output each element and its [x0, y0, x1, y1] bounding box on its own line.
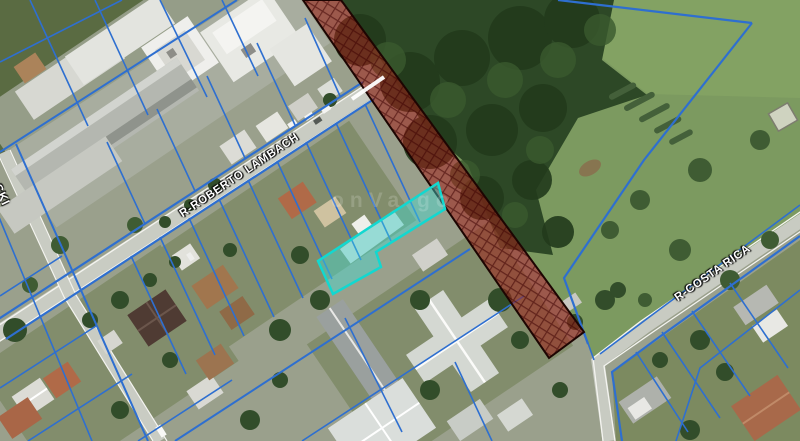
watermark: onVa go — [331, 189, 455, 213]
map-imagery — [0, 0, 800, 441]
satellite-map[interactable]: onVa go R-ROBERTO LAMBACH R-COSTA RICA S… — [0, 0, 800, 441]
